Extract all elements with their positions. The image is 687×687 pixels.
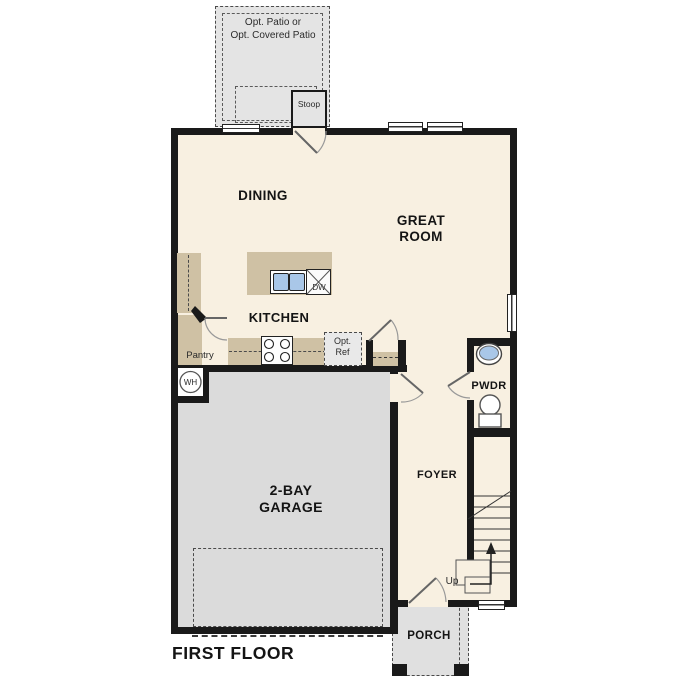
opt-patio-label: Opt. Patio or Opt. Covered Patio	[217, 16, 329, 42]
wall-pwdr-left-lower	[467, 400, 474, 428]
powder-label: PWDR	[467, 380, 511, 392]
water-heater-wall-right	[203, 368, 209, 403]
foyer-label: FOYER	[407, 469, 467, 481]
island-sink	[270, 270, 307, 294]
opt-refrigerator: Opt. Ref	[324, 332, 362, 366]
porch-post-left	[392, 664, 407, 676]
pantry-label: Pantry	[181, 350, 219, 361]
great-room-label: GREAT ROOM	[385, 213, 457, 245]
first-floor-plan: Opt. Patio or Opt. Covered Patio Stoop P…	[0, 0, 687, 687]
porch-label: PORCH	[397, 630, 461, 642]
wall-closet-left	[366, 340, 373, 372]
stoop: Stoop	[291, 90, 327, 128]
front-door-opening	[408, 600, 448, 607]
wall-garage-bottom	[171, 627, 398, 634]
cabinet-left-centerline	[188, 255, 189, 311]
garage-door-opening	[390, 374, 398, 402]
wall-left	[171, 128, 178, 634]
garage-overhead-door	[192, 635, 383, 637]
window-foyer-front	[478, 600, 505, 610]
opt-patio-label-line2: Opt. Covered Patio	[217, 29, 329, 42]
wall-stair-left	[467, 437, 474, 560]
window-greatroom-right	[507, 294, 517, 332]
window-greatroom-2	[427, 122, 463, 132]
stoop-label: Stoop	[293, 99, 325, 109]
wall-right	[510, 128, 517, 607]
stoop-door-opening	[293, 128, 325, 135]
closet-shelf	[373, 352, 398, 366]
sink-basin-left	[273, 273, 289, 291]
wall-garage-right	[390, 365, 398, 634]
wall-pwdr-top	[467, 338, 517, 346]
porch-post-right	[454, 664, 469, 676]
wall-pwdr-left-upper	[467, 338, 474, 372]
window-dining	[222, 124, 260, 133]
garage-apron-outline	[193, 548, 383, 627]
opt-ref-label: Opt. Ref	[329, 336, 356, 358]
cabinet-left-wall	[177, 253, 201, 313]
range-stove	[261, 336, 293, 365]
wall-closet-right	[398, 340, 406, 372]
garage-label: 2-BAY GARAGE	[245, 482, 337, 515]
water-heater-label: WH	[180, 378, 201, 387]
wall-pwdr-bottom	[467, 428, 517, 437]
sink-basin-right	[289, 273, 305, 291]
floor-title: FIRST FLOOR	[172, 643, 302, 664]
kitchen-label: KITCHEN	[243, 310, 315, 325]
closet-rod-dash	[373, 357, 398, 358]
dishwasher-label: DW	[308, 283, 330, 292]
opt-patio-label-line1: Opt. Patio or	[217, 16, 329, 29]
stairs-up-label: Up	[443, 576, 461, 587]
window-greatroom-1	[388, 122, 423, 132]
dining-label: DINING	[227, 188, 299, 203]
